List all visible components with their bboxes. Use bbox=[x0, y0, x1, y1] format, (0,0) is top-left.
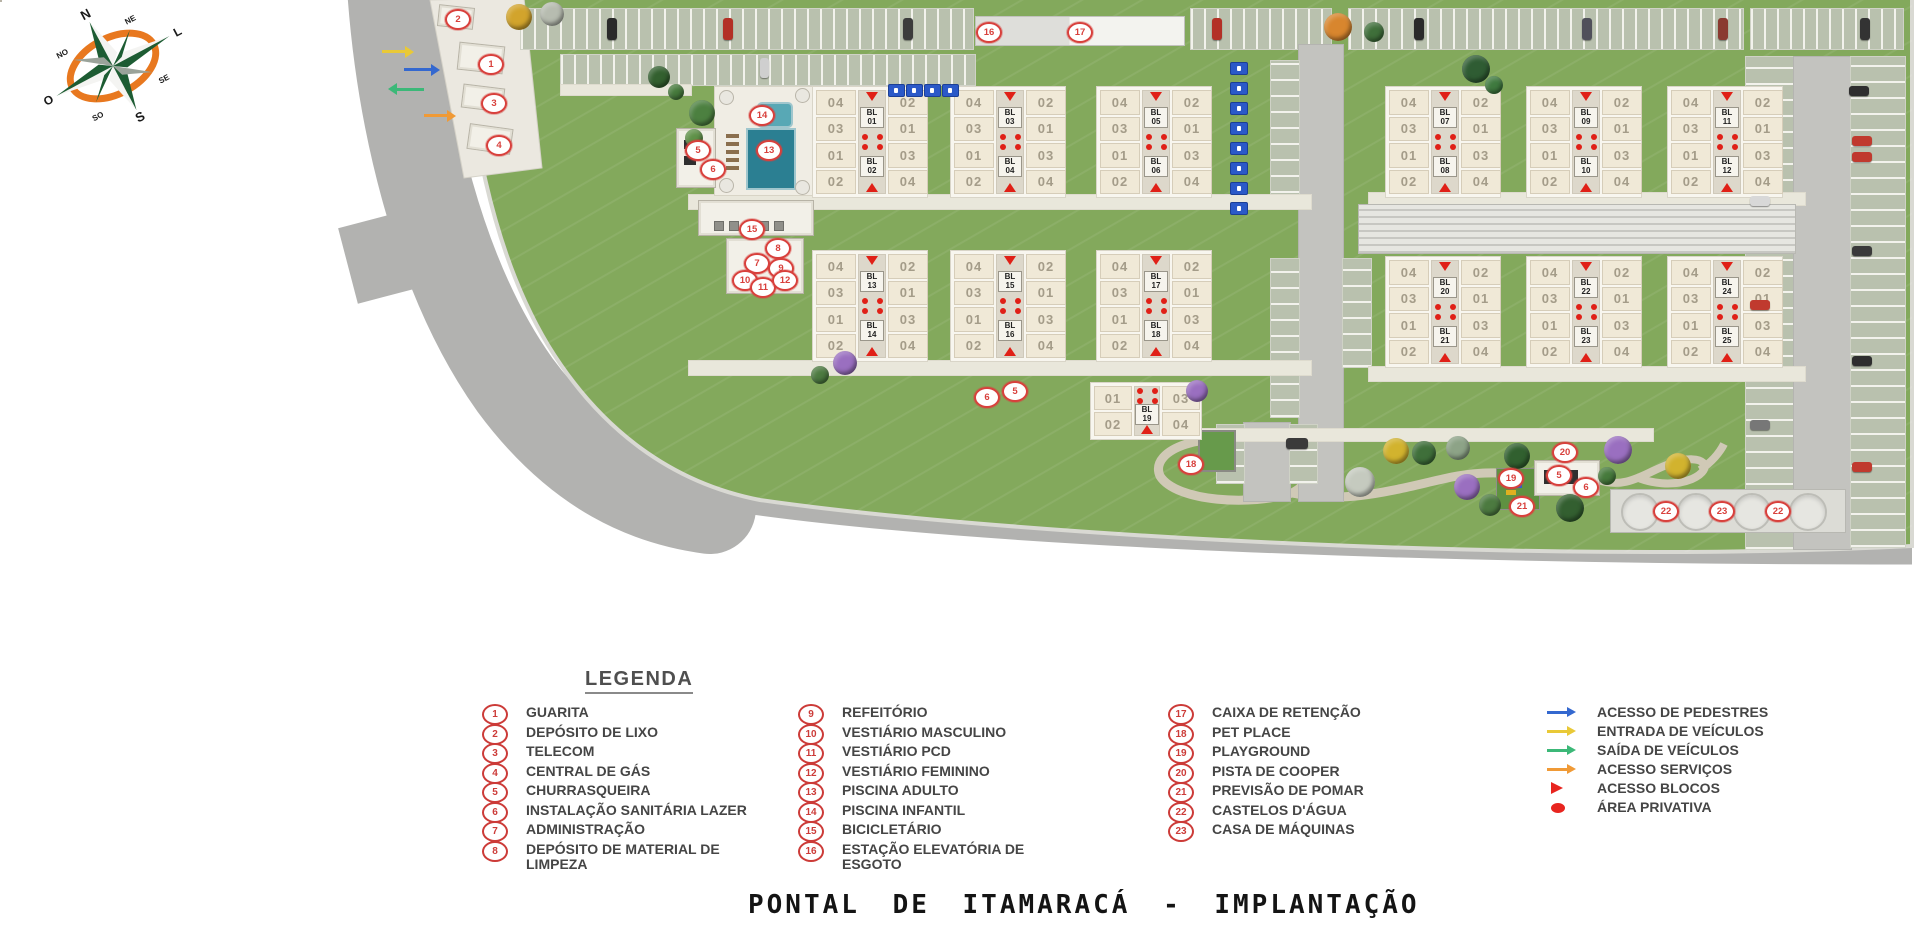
block-core: BL15BL16 bbox=[996, 254, 1024, 358]
legend-label: ENTRADA DE VEÍCULOS bbox=[1597, 723, 1764, 739]
playground-toy bbox=[1506, 490, 1516, 495]
unit-03: 03 bbox=[1461, 313, 1501, 338]
block-label: BL06 bbox=[1144, 156, 1168, 177]
private-area-dots bbox=[862, 134, 883, 150]
legend-item-10: 10VESTIÁRIO MASCULINO bbox=[798, 724, 1006, 745]
legend-number: 1 bbox=[482, 704, 508, 725]
tree bbox=[506, 4, 532, 30]
building-bl-15: 04030102BL15BL1602010304 bbox=[950, 250, 1066, 362]
unit-02: 02 bbox=[1100, 170, 1140, 195]
block-label: BL22 bbox=[1574, 277, 1598, 298]
unit-03: 03 bbox=[888, 143, 928, 168]
svg-text:SE: SE bbox=[157, 72, 171, 85]
block-core: BL19 bbox=[1134, 386, 1160, 436]
legend-symbol-item: ENTRADA DE VEÍCULOS bbox=[1545, 723, 1764, 740]
unit-02: 02 bbox=[1671, 340, 1711, 365]
legend-label: ACESSO BLOCOS bbox=[1597, 780, 1720, 796]
plan-marker-17: 17 bbox=[1067, 22, 1093, 43]
unit-02: 02 bbox=[1389, 340, 1429, 365]
unit-01: 01 bbox=[1602, 287, 1642, 312]
block-access-icon bbox=[1004, 256, 1016, 265]
tree bbox=[1324, 13, 1352, 41]
svg-text:S: S bbox=[133, 108, 148, 125]
legend-number: 12 bbox=[798, 763, 824, 784]
unit-01: 01 bbox=[1530, 143, 1570, 168]
unit-01: 01 bbox=[1389, 143, 1429, 168]
pedestrian-access-arrow bbox=[404, 68, 432, 71]
private-area-dots bbox=[1717, 134, 1738, 150]
car bbox=[1750, 420, 1770, 430]
unit-04: 04 bbox=[1530, 90, 1570, 115]
unit-03: 03 bbox=[1602, 143, 1642, 168]
walkway-south bbox=[1200, 428, 1654, 442]
accessible-parking-icon bbox=[1230, 62, 1248, 75]
legend-label: VESTIÁRIO MASCULINO bbox=[842, 724, 1006, 740]
car bbox=[903, 18, 913, 40]
unit-01: 01 bbox=[1026, 117, 1066, 142]
unit-03: 03 bbox=[1743, 313, 1783, 338]
parking-strip-top-4 bbox=[1750, 8, 1904, 50]
block-access-icon bbox=[1439, 262, 1451, 271]
legend-label: ESTAÇÃO ELEVATÓRIA DE ESGOTO bbox=[842, 841, 1024, 872]
unit-03: 03 bbox=[1389, 287, 1429, 312]
vehicle-entry-arrow bbox=[382, 50, 406, 53]
block-core: BL07BL08 bbox=[1431, 90, 1459, 194]
building-bl-03: 04030102BL03BL0402010304 bbox=[950, 86, 1066, 198]
car bbox=[1286, 438, 1308, 449]
block-label: BL20 bbox=[1433, 277, 1457, 298]
unit-01: 01 bbox=[1743, 117, 1783, 142]
unit-03: 03 bbox=[1026, 307, 1066, 332]
tree bbox=[1485, 76, 1503, 94]
car bbox=[607, 18, 617, 40]
block-label: BL18 bbox=[1144, 320, 1168, 341]
plan-marker-21: 21 bbox=[1509, 496, 1535, 517]
block-access-icon bbox=[1004, 92, 1016, 101]
unit-03: 03 bbox=[1100, 281, 1140, 306]
legend-item-14: 14PISCINA INFANTIL bbox=[798, 802, 965, 823]
accessible-parking-icon bbox=[888, 84, 905, 97]
legend-item-13: 13PISCINA ADULTO bbox=[798, 782, 959, 803]
unit-03: 03 bbox=[1530, 287, 1570, 312]
plan-marker-6: 6 bbox=[1573, 477, 1599, 498]
building-bl-11: 04030102BL11BL1202010304 bbox=[1667, 86, 1783, 198]
unit-03: 03 bbox=[1389, 117, 1429, 142]
building-bl-07: 04030102BL07BL0802010304 bbox=[1385, 86, 1501, 198]
unit-04: 04 bbox=[1162, 412, 1200, 436]
building-bl-13: 04030102BL13BL1402010304 bbox=[812, 250, 928, 362]
legend-item-4: 4CENTRAL DE GÁS bbox=[482, 763, 650, 784]
legend-item-20: 20PISTA DE COOPER bbox=[1168, 763, 1340, 784]
unit-02: 02 bbox=[1461, 260, 1501, 285]
unit-04: 04 bbox=[954, 254, 994, 279]
private-area-dots bbox=[1435, 134, 1456, 150]
legend-number: 23 bbox=[1168, 821, 1194, 842]
legend-title: LEGENDA bbox=[585, 668, 693, 694]
svg-text:L: L bbox=[171, 24, 184, 40]
legend-item-18: 18PET PLACE bbox=[1168, 724, 1291, 745]
building-bl-22: 04030102BL22BL2302010304 bbox=[1526, 256, 1642, 368]
block-access-icon bbox=[1150, 183, 1162, 192]
accessible-parking-icon bbox=[1230, 202, 1248, 215]
tree bbox=[1345, 467, 1375, 497]
legend-item-23: 23CASA DE MÁQUINAS bbox=[1168, 821, 1355, 842]
legend-item-6: 6INSTALAÇÃO SANITÁRIA LAZER bbox=[482, 802, 747, 823]
accessible-parking-icon bbox=[1230, 162, 1248, 175]
unit-03: 03 bbox=[954, 281, 994, 306]
block-label: BL04 bbox=[998, 156, 1022, 177]
legend-item-2: 2DEPÓSITO DE LIXO bbox=[482, 724, 658, 745]
plan-marker-2: 2 bbox=[445, 9, 471, 30]
plan-marker-8: 8 bbox=[765, 238, 791, 259]
block-label: BL05 bbox=[1144, 107, 1168, 128]
legend-label: VESTIÁRIO FEMININO bbox=[842, 763, 990, 779]
plan-marker-5: 5 bbox=[685, 140, 711, 161]
arrow-icon bbox=[1545, 761, 1579, 778]
accessible-parking-icon bbox=[1230, 122, 1248, 135]
unit-02: 02 bbox=[1172, 90, 1212, 115]
accessible-parking-icon bbox=[1230, 182, 1248, 195]
plan-marker-13: 13 bbox=[756, 140, 782, 161]
parasol bbox=[795, 180, 810, 195]
legend-item-12: 12VESTIÁRIO FEMININO bbox=[798, 763, 990, 784]
legend-label: DEPÓSITO DE MATERIAL DE LIMPEZA bbox=[526, 841, 720, 872]
plan-marker-12: 12 bbox=[772, 270, 798, 291]
building-bl-24: 04030102BL24BL2502010304 bbox=[1667, 256, 1783, 368]
plan-marker-1: 1 bbox=[478, 54, 504, 75]
parasol bbox=[719, 178, 734, 193]
svg-text:NE: NE bbox=[123, 13, 138, 26]
legend-number: 13 bbox=[798, 782, 824, 803]
legend-label: GUARITA bbox=[526, 704, 589, 720]
vehicle-exit-arrow bbox=[396, 88, 424, 91]
tree bbox=[1446, 436, 1470, 460]
block-access-icon bbox=[1721, 183, 1733, 192]
unit-01: 01 bbox=[1461, 117, 1501, 142]
legend-number: 5 bbox=[482, 782, 508, 803]
legend-label: TELECOM bbox=[526, 743, 594, 759]
legend-item-16: 16ESTAÇÃO ELEVATÓRIA DE ESGOTO bbox=[798, 841, 1024, 872]
block-access-icon bbox=[1150, 92, 1162, 101]
legend-item-8: 8DEPÓSITO DE MATERIAL DE LIMPEZA bbox=[482, 841, 720, 872]
block-label: BL14 bbox=[860, 320, 884, 341]
legend-label: CAIXA DE RETENÇÃO bbox=[1212, 704, 1361, 720]
unit-03: 03 bbox=[1671, 287, 1711, 312]
legend-item-22: 22CASTELOS D'ÁGUA bbox=[1168, 802, 1347, 823]
legend-label: REFEITÓRIO bbox=[842, 704, 928, 720]
block-core: BL03BL04 bbox=[996, 90, 1024, 194]
block-access-icon bbox=[1721, 353, 1733, 362]
block-label: BL24 bbox=[1715, 277, 1739, 298]
lounger bbox=[726, 150, 739, 154]
unit-04: 04 bbox=[1461, 340, 1501, 365]
unit-02: 02 bbox=[954, 170, 994, 195]
accessible-parking-icon bbox=[942, 84, 959, 97]
block-access-icon bbox=[1004, 347, 1016, 356]
legend-number: 7 bbox=[482, 821, 508, 842]
unit-01: 01 bbox=[1100, 143, 1140, 168]
tree bbox=[1556, 494, 1584, 522]
parking-aisle-right bbox=[1793, 56, 1852, 550]
building-bl-17: 04030102BL17BL1802010304 bbox=[1096, 250, 1212, 362]
plan-marker-6: 6 bbox=[700, 159, 726, 180]
legend-label: VESTIÁRIO PCD bbox=[842, 743, 951, 759]
private-area-dots bbox=[1000, 134, 1021, 150]
unit-01: 01 bbox=[1094, 386, 1132, 410]
tree bbox=[648, 66, 670, 88]
block-core: BL24BL25 bbox=[1713, 260, 1741, 364]
unit-01: 01 bbox=[1172, 117, 1212, 142]
legend-label: PISCINA INFANTIL bbox=[842, 802, 965, 818]
compass-n: N bbox=[78, 6, 93, 24]
arrow-icon bbox=[1545, 704, 1579, 721]
parasol bbox=[795, 88, 810, 103]
unit-03: 03 bbox=[1671, 117, 1711, 142]
car bbox=[1852, 356, 1872, 366]
legend-number: 19 bbox=[1168, 743, 1194, 764]
plan-marker-23: 23 bbox=[1709, 501, 1735, 522]
tree bbox=[833, 351, 857, 375]
unit-04: 04 bbox=[1671, 260, 1711, 285]
legend-label: ACESSO DE PEDESTRES bbox=[1597, 704, 1768, 720]
legend-label: PISTA DE COOPER bbox=[1212, 763, 1340, 779]
legend-item-3: 3TELECOM bbox=[482, 743, 594, 764]
legend-number: 9 bbox=[798, 704, 824, 725]
unit-04: 04 bbox=[1172, 334, 1212, 359]
plan-marker-16: 16 bbox=[976, 22, 1002, 43]
unit-02: 02 bbox=[1530, 340, 1570, 365]
unit-02: 02 bbox=[1172, 254, 1212, 279]
block-core: BL11BL12 bbox=[1713, 90, 1741, 194]
unit-01: 01 bbox=[1530, 313, 1570, 338]
tree bbox=[689, 100, 715, 126]
legend-label: BICICLETÁRIO bbox=[842, 821, 942, 837]
legend-label: INSTALAÇÃO SANITÁRIA LAZER bbox=[526, 802, 747, 818]
unit-04: 04 bbox=[1461, 170, 1501, 195]
block-label: BL02 bbox=[860, 156, 884, 177]
block-label: BL03 bbox=[998, 107, 1022, 128]
legend-number: 10 bbox=[798, 724, 824, 745]
compass-rose: N NE L SE S SO O NO bbox=[28, 2, 198, 132]
building-bl-20: 04030102BL20BL2102010304 bbox=[1385, 256, 1501, 368]
legend-item-1: 1GUARITA bbox=[482, 704, 589, 725]
unit-04: 04 bbox=[1026, 334, 1066, 359]
car bbox=[1212, 18, 1222, 40]
car bbox=[1718, 18, 1728, 40]
block-label: BL16 bbox=[998, 320, 1022, 341]
unit-01: 01 bbox=[1461, 287, 1501, 312]
unit-03: 03 bbox=[888, 307, 928, 332]
tree bbox=[1364, 22, 1384, 42]
car bbox=[1852, 136, 1872, 146]
legend-number: 4 bbox=[482, 763, 508, 784]
lounger bbox=[726, 158, 739, 162]
block-access-icon bbox=[1580, 183, 1592, 192]
legend-label: ADMINISTRAÇÃO bbox=[526, 821, 645, 837]
legend-label: PET PLACE bbox=[1212, 724, 1291, 740]
unit-04: 04 bbox=[1530, 260, 1570, 285]
tree bbox=[1186, 380, 1208, 402]
legend-label: CASA DE MÁQUINAS bbox=[1212, 821, 1355, 837]
walkway-left-bottom bbox=[688, 360, 1312, 376]
unit-04: 04 bbox=[1100, 254, 1140, 279]
legend-label: PISCINA ADULTO bbox=[842, 782, 959, 798]
car bbox=[1852, 246, 1872, 256]
accessible-parking-icon bbox=[906, 84, 923, 97]
legend-item-17: 17CAIXA DE RETENÇÃO bbox=[1168, 704, 1361, 725]
block-access-icon bbox=[1580, 92, 1592, 101]
parasol bbox=[719, 90, 734, 105]
lounger bbox=[726, 142, 739, 146]
unit-01: 01 bbox=[1100, 307, 1140, 332]
block-label: BL12 bbox=[1715, 156, 1739, 177]
unit-02: 02 bbox=[888, 254, 928, 279]
block-label: BL25 bbox=[1715, 326, 1739, 347]
plan-marker-19: 19 bbox=[1498, 468, 1524, 489]
building-bl-09: 04030102BL09BL1002010304 bbox=[1526, 86, 1642, 198]
unit-01: 01 bbox=[1389, 313, 1429, 338]
svg-text:NO: NO bbox=[55, 47, 70, 61]
legend-label: DEPÓSITO DE LIXO bbox=[526, 724, 658, 740]
unit-04: 04 bbox=[1743, 170, 1783, 195]
unit-03: 03 bbox=[1100, 117, 1140, 142]
unit-03: 03 bbox=[1743, 143, 1783, 168]
unit-04: 04 bbox=[1100, 90, 1140, 115]
plan-marker-14: 14 bbox=[749, 105, 775, 126]
accessible-parking-icon bbox=[924, 84, 941, 97]
legend-number: 18 bbox=[1168, 724, 1194, 745]
legend-number: 21 bbox=[1168, 782, 1194, 803]
unit-04: 04 bbox=[954, 90, 994, 115]
unit-03: 03 bbox=[1530, 117, 1570, 142]
legend-number: 8 bbox=[482, 841, 508, 862]
plan-marker-15: 15 bbox=[739, 219, 765, 240]
block-access-icon bbox=[1439, 92, 1451, 101]
unit-04: 04 bbox=[1743, 340, 1783, 365]
legend-number: 22 bbox=[1168, 802, 1194, 823]
block-label: BL21 bbox=[1433, 326, 1457, 347]
block-core: BL09BL10 bbox=[1572, 90, 1600, 194]
unit-01: 01 bbox=[816, 143, 856, 168]
legend-label: CASTELOS D'ÁGUA bbox=[1212, 802, 1347, 818]
legend-symbol-item: SAÍDA DE VEÍCULOS bbox=[1545, 742, 1739, 759]
retention-basin bbox=[1358, 204, 1796, 254]
legend-number: 3 bbox=[482, 743, 508, 764]
unit-01: 01 bbox=[954, 143, 994, 168]
block-label: BL08 bbox=[1433, 156, 1457, 177]
unit-03: 03 bbox=[954, 117, 994, 142]
legend-label: CENTRAL DE GÁS bbox=[526, 763, 650, 779]
unit-03: 03 bbox=[1026, 143, 1066, 168]
unit-03: 03 bbox=[1172, 143, 1212, 168]
car bbox=[723, 18, 733, 40]
block-access-icon bbox=[1721, 262, 1733, 271]
unit-02: 02 bbox=[1094, 412, 1132, 436]
block-label: BL23 bbox=[1574, 326, 1598, 347]
unit-04: 04 bbox=[1602, 170, 1642, 195]
unit-01: 01 bbox=[954, 307, 994, 332]
plan-marker-6: 6 bbox=[974, 387, 1000, 408]
block-access-icon bbox=[1141, 425, 1153, 434]
car bbox=[1860, 18, 1870, 40]
unit-03: 03 bbox=[1172, 307, 1212, 332]
block-label: BL01 bbox=[860, 107, 884, 128]
unit-01: 01 bbox=[1671, 313, 1711, 338]
car bbox=[1852, 462, 1872, 472]
legend-label: CHURRASQUEIRA bbox=[526, 782, 650, 798]
unit-01: 01 bbox=[1602, 117, 1642, 142]
block-access-icon bbox=[866, 92, 878, 101]
legend-label: PREVISÃO DE POMAR bbox=[1212, 782, 1364, 798]
unit-04: 04 bbox=[1671, 90, 1711, 115]
plan-marker-22: 22 bbox=[1653, 501, 1679, 522]
unit-01: 01 bbox=[1172, 281, 1212, 306]
bbq-building-2 bbox=[0, 0, 2, 2]
legend-label: SAÍDA DE VEÍCULOS bbox=[1597, 742, 1739, 758]
legend-number: 14 bbox=[798, 802, 824, 823]
accessible-parking-icon bbox=[1230, 142, 1248, 155]
legend-item-15: 15BICICLETÁRIO bbox=[798, 821, 942, 842]
legend-item-19: 19PLAYGROUND bbox=[1168, 743, 1310, 764]
unit-02: 02 bbox=[1389, 170, 1429, 195]
car bbox=[1852, 152, 1872, 162]
block-core: BL13BL14 bbox=[858, 254, 886, 358]
private-area-dots bbox=[1435, 304, 1456, 320]
plan-marker-5: 5 bbox=[1002, 381, 1028, 402]
walkway-right-bottom bbox=[1368, 366, 1806, 382]
block-access-icon bbox=[1150, 256, 1162, 265]
parking-central-2 bbox=[1270, 258, 1300, 418]
parking-central-3 bbox=[1342, 258, 1372, 368]
svg-text:SO: SO bbox=[91, 110, 105, 123]
unit-04: 04 bbox=[1172, 170, 1212, 195]
unit-03: 03 bbox=[816, 281, 856, 306]
unit-04: 04 bbox=[1389, 260, 1429, 285]
parking-strip-top-3 bbox=[1348, 8, 1744, 50]
unit-02: 02 bbox=[1743, 90, 1783, 115]
unit-01: 01 bbox=[888, 281, 928, 306]
block-core: BL22BL23 bbox=[1572, 260, 1600, 364]
legend-item-21: 21PREVISÃO DE POMAR bbox=[1168, 782, 1364, 803]
legend-symbol-item: ACESSO BLOCOS bbox=[1545, 780, 1720, 797]
legend-label: ACESSO SERVIÇOS bbox=[1597, 761, 1732, 777]
block-core: BL17BL18 bbox=[1142, 254, 1170, 358]
block-core: BL20BL21 bbox=[1431, 260, 1459, 364]
unit-02: 02 bbox=[1530, 170, 1570, 195]
tree bbox=[1412, 441, 1436, 465]
unit-02: 02 bbox=[1602, 260, 1642, 285]
legend-symbol-item: ÁREA PRIVATIVA bbox=[1545, 799, 1712, 816]
block-access-icon bbox=[1580, 353, 1592, 362]
road-stub bbox=[348, 238, 455, 266]
unit-04: 04 bbox=[1026, 170, 1066, 195]
service-access-arrow bbox=[424, 114, 448, 117]
block-label: BL10 bbox=[1574, 156, 1598, 177]
unit-02: 02 bbox=[1026, 90, 1066, 115]
bike-rack bbox=[774, 221, 784, 231]
block-access-icon bbox=[866, 256, 878, 265]
tree bbox=[1598, 467, 1616, 485]
unit-02: 02 bbox=[1671, 170, 1711, 195]
legend-label: ÁREA PRIVATIVA bbox=[1597, 799, 1712, 815]
legend-number: 11 bbox=[798, 743, 824, 764]
unit-01: 01 bbox=[1671, 143, 1711, 168]
unit-03: 03 bbox=[1461, 143, 1501, 168]
parking-central-1 bbox=[1270, 60, 1300, 210]
unit-01: 01 bbox=[888, 117, 928, 142]
unit-02: 02 bbox=[1100, 334, 1140, 359]
block-label: BL09 bbox=[1574, 107, 1598, 128]
